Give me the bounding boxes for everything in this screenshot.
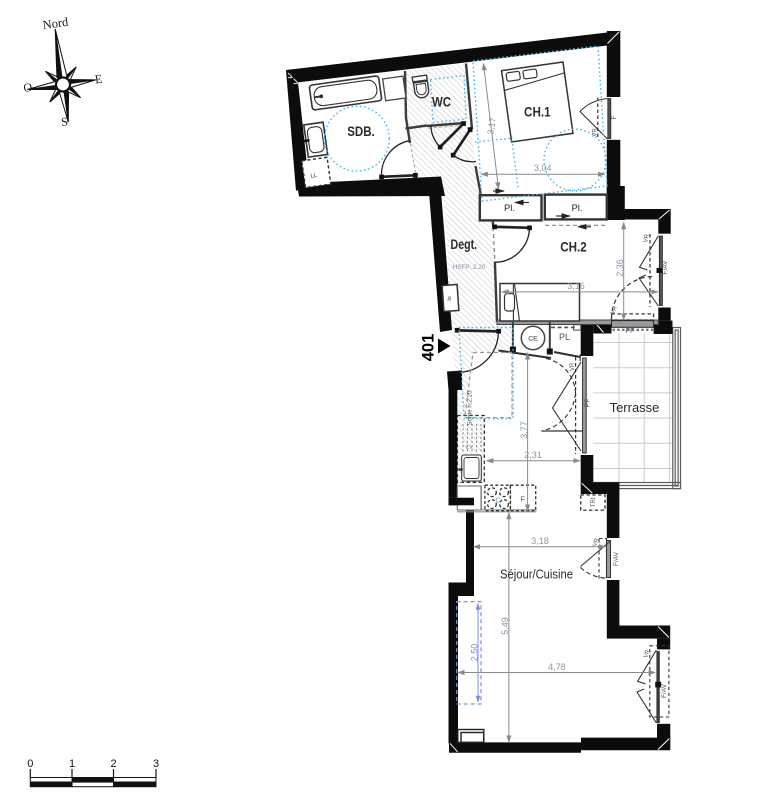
svg-text:2,36: 2,36 bbox=[615, 259, 625, 277]
svg-text:1: 1 bbox=[69, 758, 75, 770]
svg-text:3,17: 3,17 bbox=[485, 117, 497, 136]
svg-text:F: F bbox=[521, 497, 525, 504]
svg-text:PF: PF bbox=[585, 399, 592, 408]
svg-text:Sortie h:2.20: Sortie h:2.20 bbox=[467, 390, 474, 426]
svg-text:3,18: 3,18 bbox=[531, 536, 549, 546]
svg-text:0: 0 bbox=[27, 758, 33, 770]
svg-text:LV: LV bbox=[466, 445, 473, 451]
svg-text:2: 2 bbox=[110, 758, 116, 770]
svg-text:2,50: 2,50 bbox=[469, 644, 479, 662]
svg-text:Degt.: Degt. bbox=[451, 237, 478, 252]
svg-text:Pl.: Pl. bbox=[504, 203, 515, 214]
svg-text:PL: PL bbox=[559, 332, 570, 342]
svg-text:3,77: 3,77 bbox=[519, 421, 529, 439]
svg-text:Pl.: Pl. bbox=[571, 203, 582, 214]
svg-text:2,31: 2,31 bbox=[524, 450, 542, 460]
svg-text:SDB.: SDB. bbox=[347, 124, 375, 139]
svg-text:TRI: TRI bbox=[591, 497, 597, 507]
svg-text:3,04: 3,04 bbox=[534, 163, 552, 173]
svg-text:3,16: 3,16 bbox=[567, 281, 585, 291]
svg-text:VR: VR bbox=[570, 362, 576, 371]
svg-text:3: 3 bbox=[153, 758, 159, 770]
svg-text:HSFP: 2.20: HSFP: 2.20 bbox=[453, 264, 486, 271]
svg-text:F: F bbox=[611, 115, 618, 119]
svg-text:CE: CE bbox=[528, 336, 538, 343]
svg-text:F/AV: F/AV bbox=[613, 551, 620, 566]
svg-text:C: C bbox=[495, 498, 500, 505]
svg-text:F/AV: F/AV bbox=[661, 683, 668, 698]
svg-text:PF: PF bbox=[625, 328, 634, 335]
svg-text:Terrasse: Terrasse bbox=[610, 400, 660, 415]
svg-text:Séjour/Cuisine: Séjour/Cuisine bbox=[500, 566, 573, 581]
svg-text:5,49: 5,49 bbox=[500, 617, 510, 635]
svg-text:CH.2: CH.2 bbox=[560, 239, 587, 254]
svg-text:CH.1: CH.1 bbox=[524, 104, 551, 119]
svg-text:4,78: 4,78 bbox=[548, 662, 566, 672]
svg-text:lo: lo bbox=[447, 296, 453, 300]
svg-text:VR: VR bbox=[593, 128, 599, 137]
svg-text:401: 401 bbox=[420, 334, 438, 362]
svg-text:WC: WC bbox=[432, 95, 451, 110]
svg-text:F/AV: F/AV bbox=[662, 260, 669, 275]
